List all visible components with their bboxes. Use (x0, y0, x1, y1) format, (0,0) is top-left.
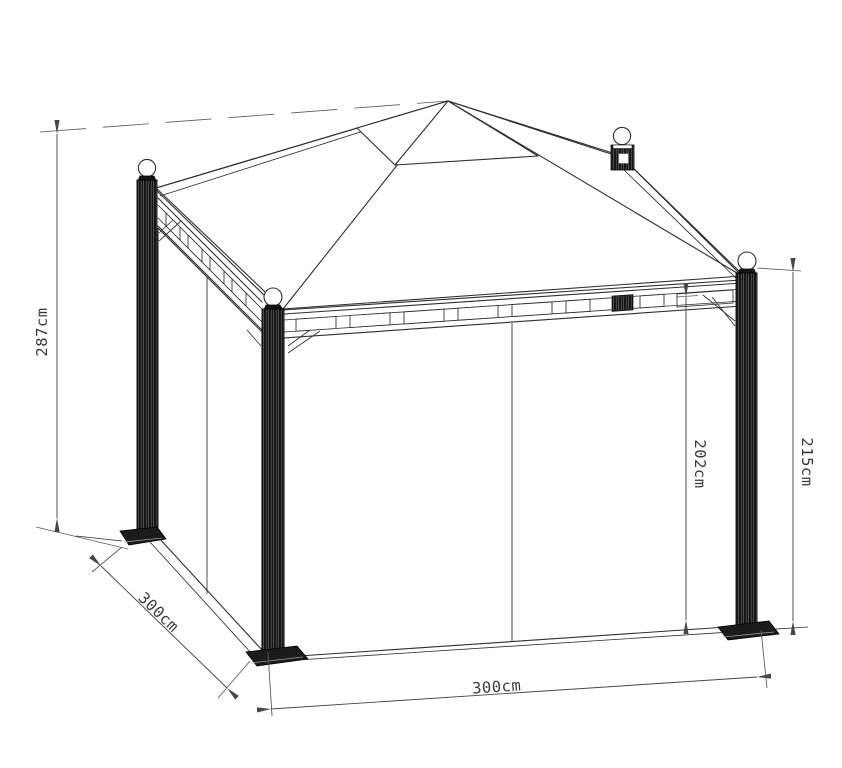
finial-ball-front-left (264, 288, 282, 306)
base-plate-rear-left (120, 527, 166, 545)
finial-ball-front-right (738, 252, 756, 270)
dimension-overall-height: 287cm (33, 134, 128, 549)
gazebo-dimension-drawing: 287cm 300cm 300cm 202cm 215cm (0, 0, 842, 768)
curtain-left-side (158, 228, 262, 650)
label-side-depth: 300cm (135, 589, 183, 636)
dimension-post-height: 215cm (757, 268, 816, 621)
post-rear-right-bracket-hole (619, 154, 628, 163)
label-overall-height: 287cm (33, 307, 51, 356)
label-post-height: 215cm (798, 437, 816, 486)
finial-ball-rear-right (613, 127, 630, 144)
curtain-front (284, 306, 742, 657)
label-front-width: 300cm (472, 676, 522, 697)
finial-ball-rear-left (138, 159, 155, 176)
label-clearance-height: 202cm (691, 439, 709, 488)
canopy-roof (155, 101, 742, 310)
base-plate-front-left (246, 646, 308, 666)
drawing-canvas: 287cm 300cm 300cm 202cm 215cm (0, 0, 842, 768)
